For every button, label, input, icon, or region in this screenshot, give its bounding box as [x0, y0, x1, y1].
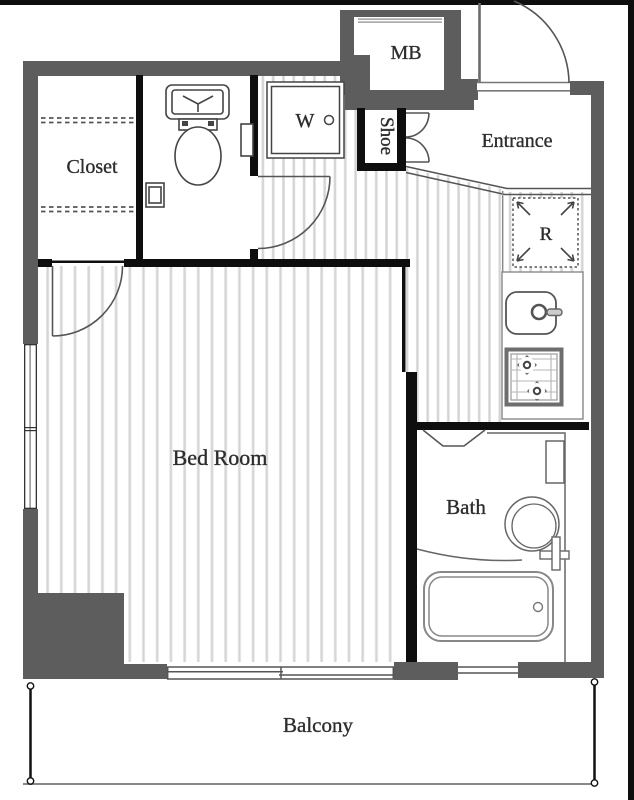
svg-text:Shoe: Shoe: [376, 117, 397, 155]
svg-text:Bath: Bath: [446, 495, 486, 519]
svg-text:Bed Room: Bed Room: [173, 445, 268, 470]
svg-text:MB: MB: [390, 42, 421, 64]
svg-text:Entrance: Entrance: [481, 130, 552, 152]
svg-text:Balcony: Balcony: [283, 713, 353, 737]
svg-text:Closet: Closet: [66, 156, 118, 178]
svg-text:R: R: [540, 224, 553, 245]
svg-text:W: W: [296, 110, 315, 132]
